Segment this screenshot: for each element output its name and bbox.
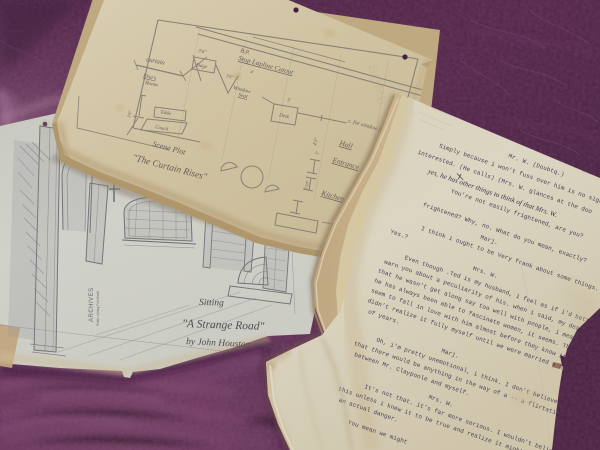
svg-text:Sitting: Sitting — [199, 298, 224, 308]
svg-text:ARCHIVES: ARCHIVES — [89, 287, 95, 322]
svg-text:Public Library Fort Worth: Public Library Fort Worth — [96, 291, 100, 326]
